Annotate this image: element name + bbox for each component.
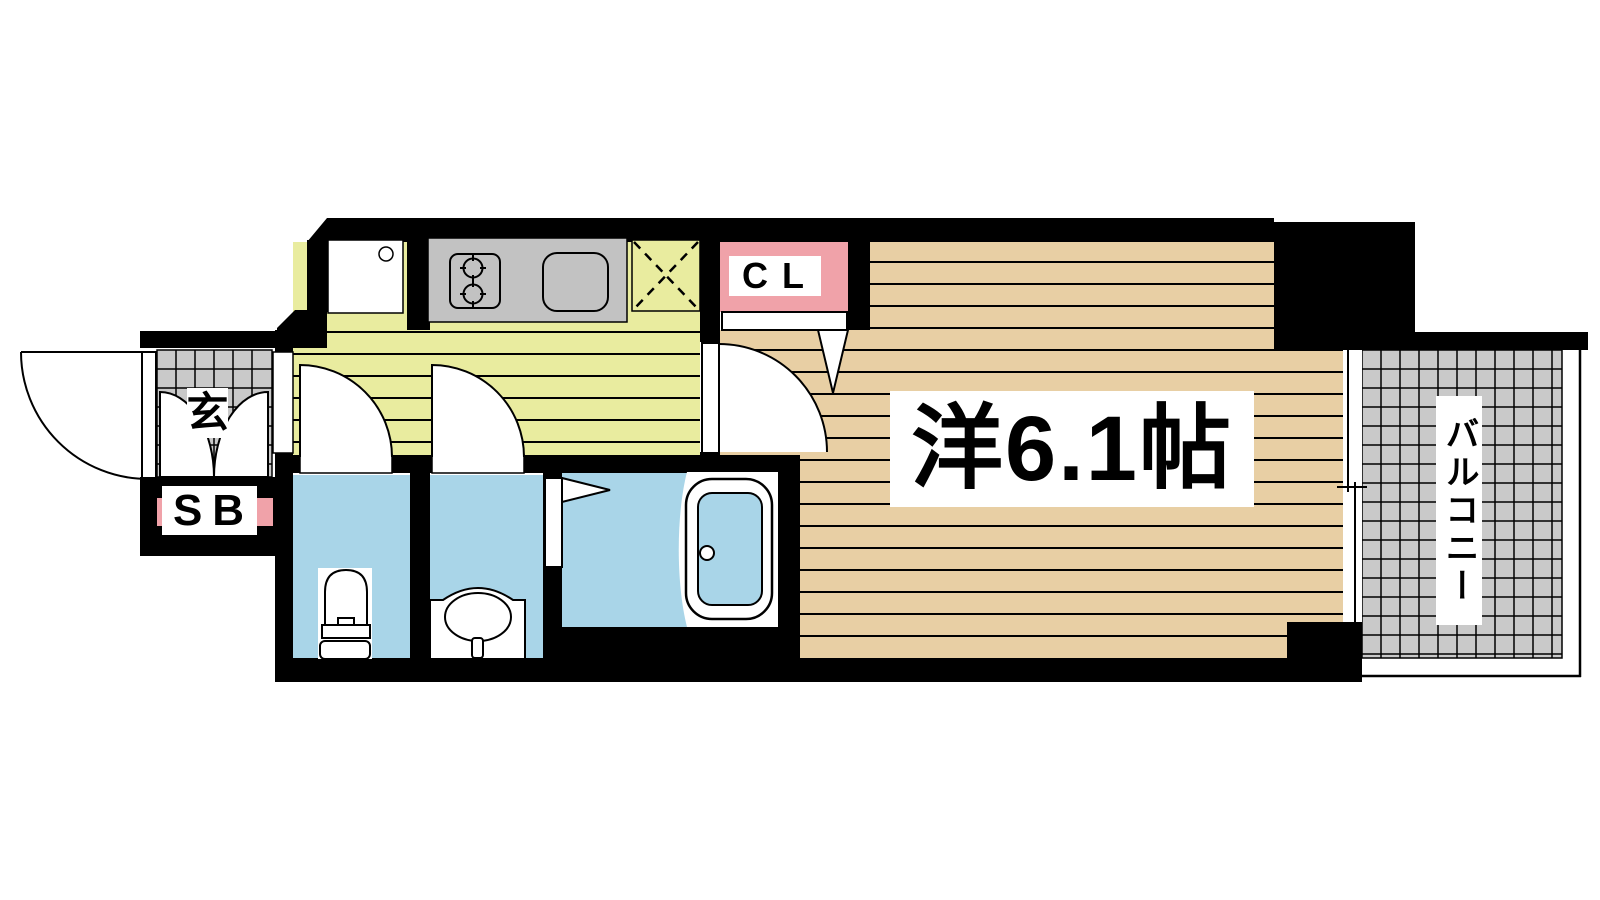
- kitchen-counter: [428, 238, 627, 322]
- refrigerator-space: [328, 240, 403, 313]
- toilet: [318, 568, 372, 659]
- wall-fridge-counter-divider: [407, 240, 430, 330]
- wall-bottom-right-block: [1287, 622, 1362, 658]
- closet-front-strip: [722, 312, 847, 330]
- wall-pillar-top-right: [1274, 222, 1415, 350]
- opening-wash-door: [432, 455, 524, 473]
- wall-left-of-fridge: [307, 240, 328, 312]
- kitchen-sink: [543, 253, 608, 311]
- wash-basin: [430, 588, 525, 659]
- opening-entrance-hall: [273, 352, 293, 453]
- balcony-label: バルコニー: [1436, 396, 1482, 625]
- wall-toilet-wash-divider: [410, 455, 430, 682]
- wall-balcony-top: [1415, 332, 1588, 350]
- opening-toilet-door: [300, 455, 392, 473]
- washing-machine-space: [632, 240, 700, 311]
- floor-plan-drawing: [0, 0, 1600, 900]
- wall-bath-room: [777, 455, 800, 682]
- wall-closet-right: [848, 240, 870, 330]
- wall-closet-left: [700, 240, 720, 342]
- shoe-box-label: SB: [162, 486, 257, 535]
- bathtub-drain: [700, 546, 714, 560]
- wall-bottom: [275, 658, 1362, 682]
- entrance-label: 玄: [187, 388, 228, 438]
- floor-plan: 玄 SB CL 洋6.1帖 バルコニー: [0, 0, 1600, 900]
- western-room-label: 洋6.1帖: [890, 391, 1254, 507]
- bathtub: [679, 472, 778, 627]
- wall-entrance-top: [140, 331, 295, 348]
- closet-label: CL: [729, 256, 821, 296]
- entrance-door: [21, 352, 156, 479]
